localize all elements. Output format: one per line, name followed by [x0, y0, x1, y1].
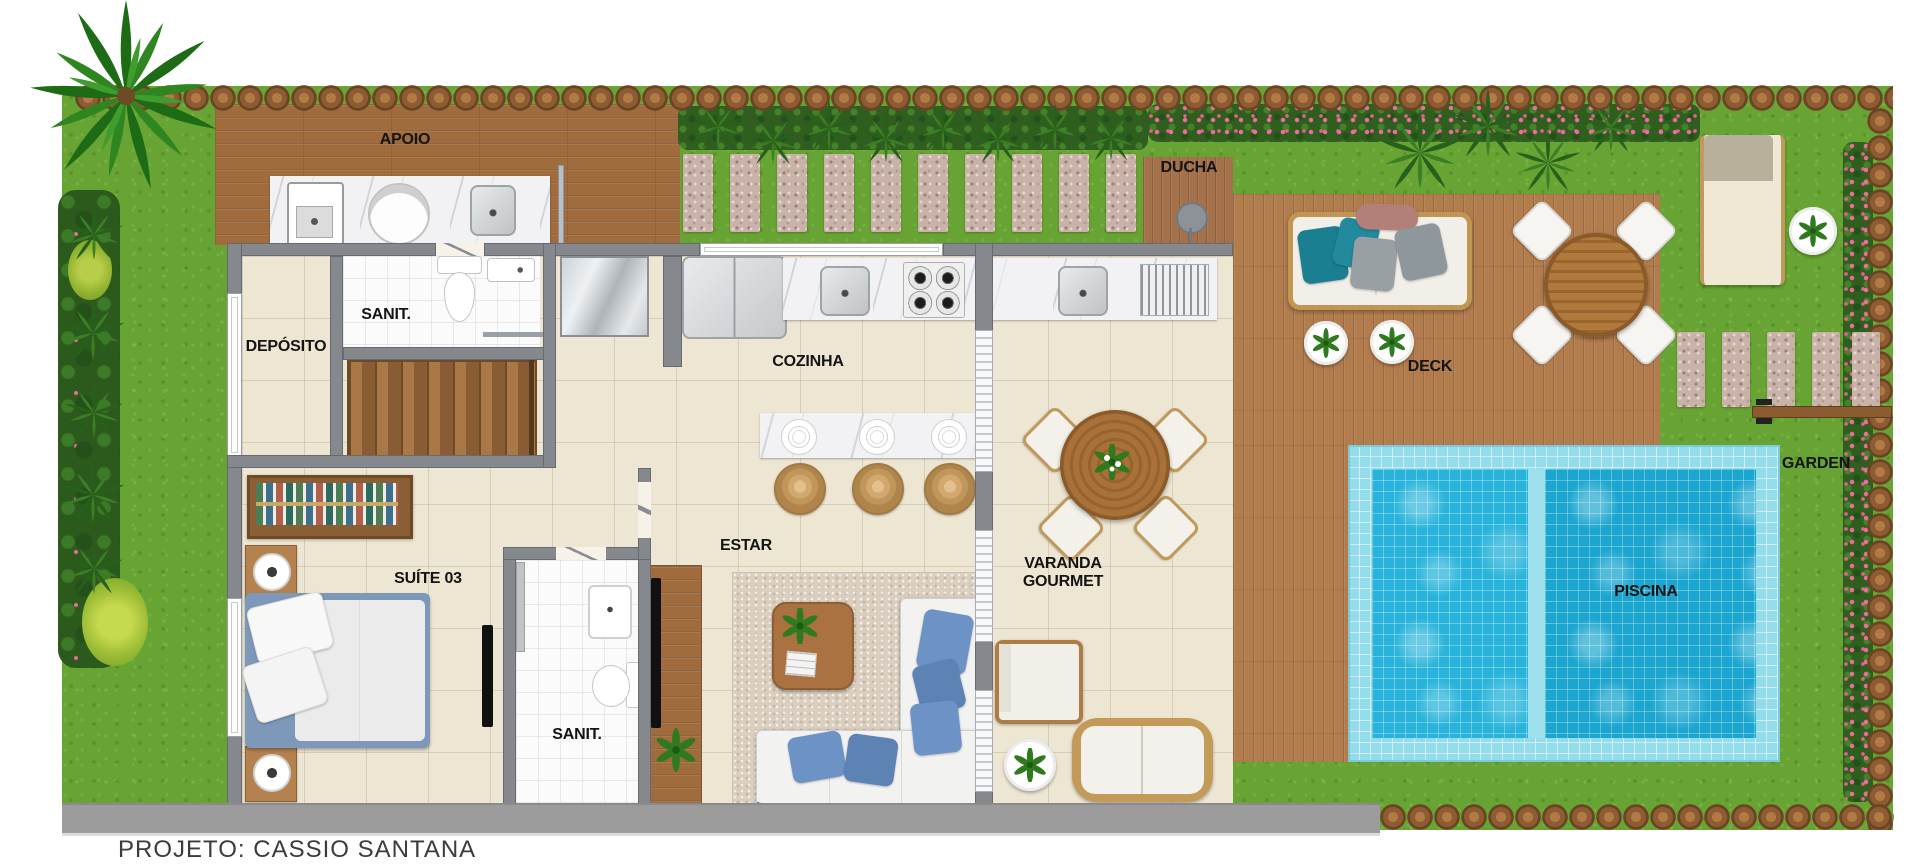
pool — [1348, 445, 1780, 762]
fern-plant — [1580, 98, 1642, 158]
table-lamp — [253, 553, 291, 591]
stepping-stone — [1852, 332, 1880, 407]
service-shower-pipe — [558, 165, 564, 247]
cooktop — [903, 262, 965, 318]
room-label-varanda-gourmet: VARANDA GOURMET — [1023, 555, 1103, 591]
fern-plant — [1026, 102, 1084, 156]
planter-plant — [1311, 328, 1341, 358]
suite-window — [227, 598, 242, 737]
armchair — [995, 640, 1083, 724]
bush-plant — [58, 462, 128, 528]
table-lamp — [253, 754, 291, 792]
kitchen-sink — [820, 266, 870, 316]
gate-handle — [1756, 399, 1772, 405]
fern-plant — [1512, 128, 1584, 198]
room-label-cozinha: COZINHA — [772, 353, 843, 371]
armchair-back — [999, 644, 1011, 712]
fern-plant — [1082, 110, 1140, 166]
stepping-stone — [1677, 332, 1705, 407]
bush-plant — [62, 538, 126, 600]
sliding-glass-door — [975, 690, 993, 792]
washing-machine — [287, 182, 344, 247]
planter-plant — [1797, 215, 1829, 247]
gourmet-sink — [1058, 266, 1108, 316]
fern-plant — [800, 100, 858, 156]
sliding-glass-door — [975, 530, 993, 642]
room-label-estar: ESTAR — [720, 537, 772, 555]
bush-plant — [62, 204, 126, 266]
bush-plant — [62, 382, 126, 444]
room-label-deposito: DEPÓSITO — [246, 338, 327, 356]
table-flowers — [1094, 444, 1130, 480]
bar-stool — [924, 463, 976, 515]
fridge — [682, 256, 787, 339]
stepping-stone — [824, 154, 854, 232]
area-label-piscina: PISCINA — [1614, 583, 1678, 601]
laundry-sink — [470, 185, 516, 236]
footer-credit: PROJETO: CASSIO SANTANA — [118, 836, 476, 864]
deck-dining-table — [1544, 233, 1648, 337]
kitchen-window — [700, 243, 943, 256]
stepping-stone — [918, 154, 948, 232]
towel-bar — [483, 332, 548, 337]
place-setting — [859, 419, 895, 455]
fern-plant — [856, 110, 916, 168]
bar-stool — [852, 463, 904, 515]
door-opening — [436, 243, 484, 256]
varanda-line1: VARANDA — [1023, 555, 1103, 573]
wall — [543, 243, 556, 468]
deposito-window — [227, 293, 242, 457]
dish-rack — [1140, 264, 1209, 316]
fern-plant — [914, 102, 972, 156]
room-label-suite03: SUÍTE 03 — [394, 570, 462, 588]
sofa-pillow — [786, 730, 847, 785]
stepping-stone — [1812, 332, 1840, 407]
log-border-bottom — [1380, 803, 1894, 831]
log-border-right — [1866, 108, 1894, 830]
pool-divider — [1528, 469, 1545, 738]
shower-door — [516, 562, 525, 652]
magazine — [785, 651, 817, 678]
wall — [484, 243, 700, 256]
pool-water-left — [1372, 469, 1528, 738]
staircase — [347, 360, 537, 461]
stair-rail — [529, 360, 534, 457]
bush-plant — [58, 300, 128, 366]
bathroom-sink — [487, 258, 535, 282]
place-setting — [931, 419, 967, 455]
wall — [227, 243, 436, 256]
room-label-sanit-suite: SANIT. — [552, 726, 601, 744]
sofa-pillow — [909, 700, 962, 757]
sidewalk — [62, 803, 1380, 833]
fern-plant — [690, 100, 746, 154]
daybed-pillow-gray — [1349, 236, 1398, 292]
garden-gate — [1752, 406, 1892, 418]
varanda-line2: GOURMET — [1023, 573, 1103, 591]
shower-head — [1176, 202, 1208, 234]
stepping-stone — [1722, 332, 1750, 407]
lounger-headrest — [1704, 135, 1773, 181]
wall-stub — [663, 256, 682, 367]
wall — [227, 455, 556, 468]
bar-stool — [774, 463, 826, 515]
area-label-deck: DECK — [1408, 358, 1453, 376]
area-label-garden: GARDEN — [1782, 455, 1850, 473]
washer-dial — [311, 218, 318, 225]
floor-plan-scene: APOIO DUCHA SANIT. DEPÓSITO COZINHA ESTA… — [0, 0, 1919, 866]
pool-water-right — [1545, 469, 1756, 738]
palm-tree — [8, 0, 228, 204]
sofa-pillow — [843, 733, 899, 787]
loveseat — [1072, 718, 1213, 802]
wall — [343, 347, 556, 360]
wall — [503, 547, 516, 805]
bathroom-sink — [588, 585, 632, 639]
wall — [330, 256, 343, 460]
toilet-bowl — [592, 665, 630, 707]
double-bed — [245, 593, 430, 748]
room-label-ducha: DUCHA — [1161, 159, 1218, 177]
sliding-glass-door — [975, 330, 993, 472]
wardrobe-rail — [256, 502, 398, 506]
room-label-apoio: APOIO — [380, 131, 431, 149]
stepping-stone — [683, 154, 713, 232]
planter-plant — [1377, 327, 1407, 357]
loveseat-cushions — [1081, 726, 1204, 794]
room-label-sanit-service: SANIT. — [361, 306, 410, 324]
water-tank — [368, 183, 430, 245]
fern-plant — [968, 112, 1028, 168]
tv — [482, 625, 493, 727]
gate-handle — [1756, 418, 1772, 424]
place-setting — [781, 419, 817, 455]
sun-lounger — [1700, 135, 1785, 285]
wall — [638, 547, 651, 805]
wardrobe — [247, 475, 413, 539]
door-opening — [638, 482, 651, 538]
fern-plant — [742, 112, 804, 170]
pool-side-deck — [1233, 445, 1348, 762]
decor-plant — [656, 728, 696, 772]
stepping-stone — [1767, 332, 1795, 407]
tv — [651, 578, 661, 728]
side-table-plant — [1013, 748, 1047, 782]
kitchen-glass-door — [560, 256, 649, 337]
table-plant — [782, 608, 818, 644]
door-opening — [556, 547, 606, 560]
